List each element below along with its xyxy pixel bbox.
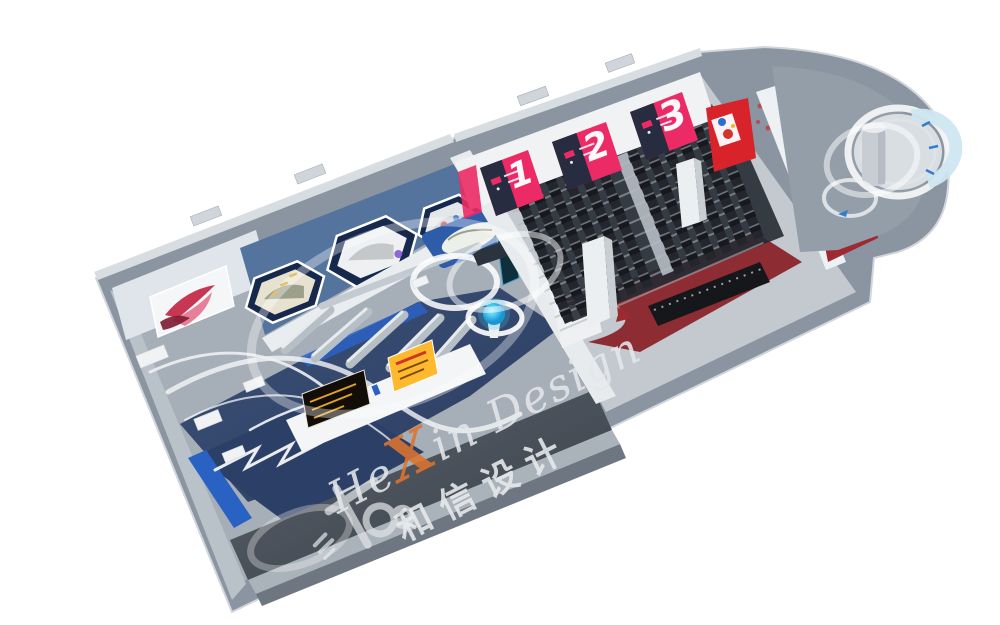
stage-panel-blob [723, 129, 733, 139]
render-canvas: 123 HeXin Design 和信设计 [0, 0, 1000, 625]
glass-cylinder-pillar [862, 123, 886, 186]
stage-panel-dot [731, 124, 735, 128]
exhibition-hall-render: 123 HeXin Design 和信设计 [0, 0, 1000, 625]
globe-glow [478, 298, 510, 330]
stage-panel-logo [718, 118, 726, 126]
column-a [582, 236, 618, 328]
